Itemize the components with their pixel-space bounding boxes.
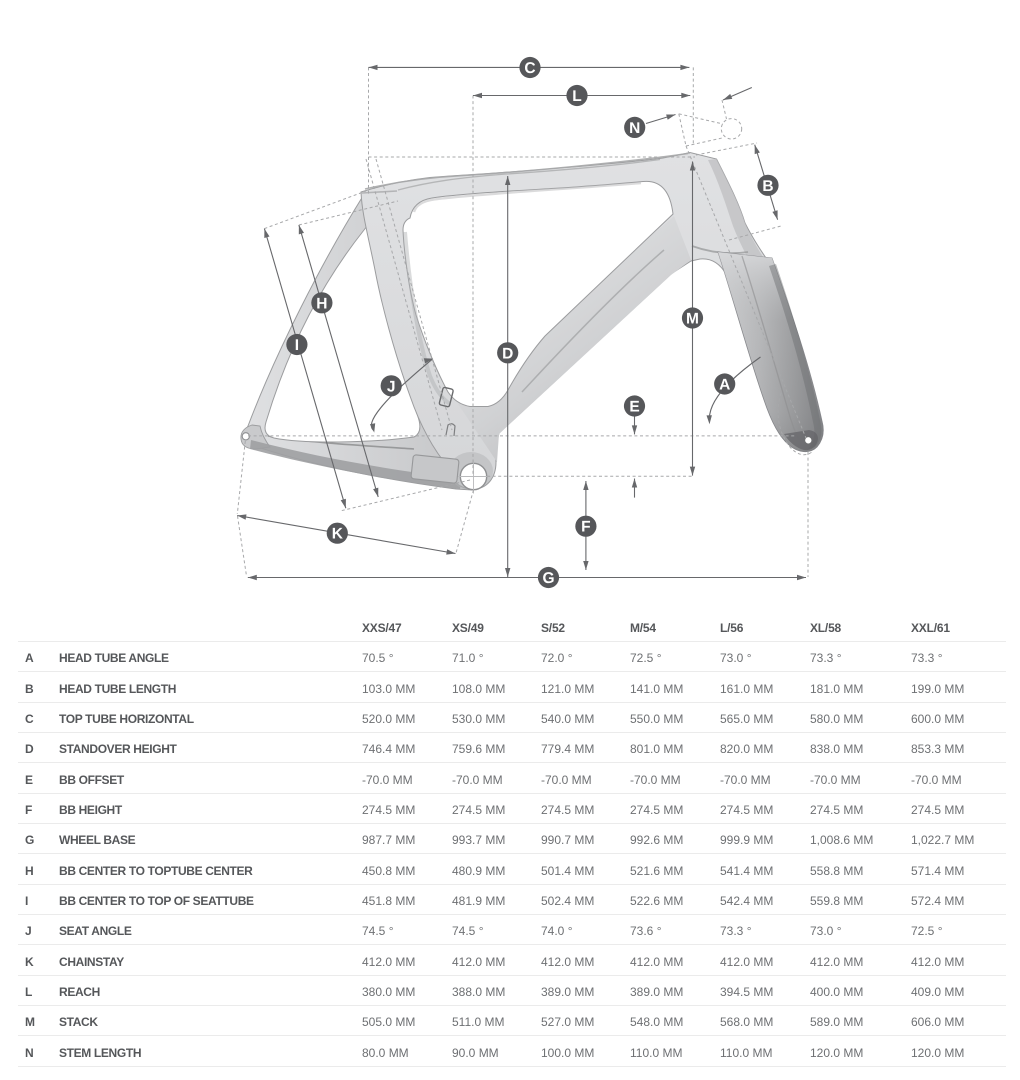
svg-text:H: H — [316, 295, 327, 312]
svg-text:G: G — [542, 570, 554, 587]
svg-text:F: F — [581, 519, 590, 536]
svg-text:N: N — [629, 120, 640, 137]
svg-text:A: A — [719, 377, 730, 394]
svg-text:B: B — [762, 178, 773, 195]
svg-text:C: C — [524, 60, 535, 77]
svg-text:E: E — [629, 399, 639, 416]
svg-text:M: M — [686, 311, 699, 328]
svg-text:L: L — [572, 88, 581, 105]
svg-text:K: K — [332, 526, 344, 543]
svg-text:D: D — [502, 345, 513, 362]
svg-text:I: I — [295, 337, 299, 354]
svg-text:J: J — [387, 378, 396, 395]
